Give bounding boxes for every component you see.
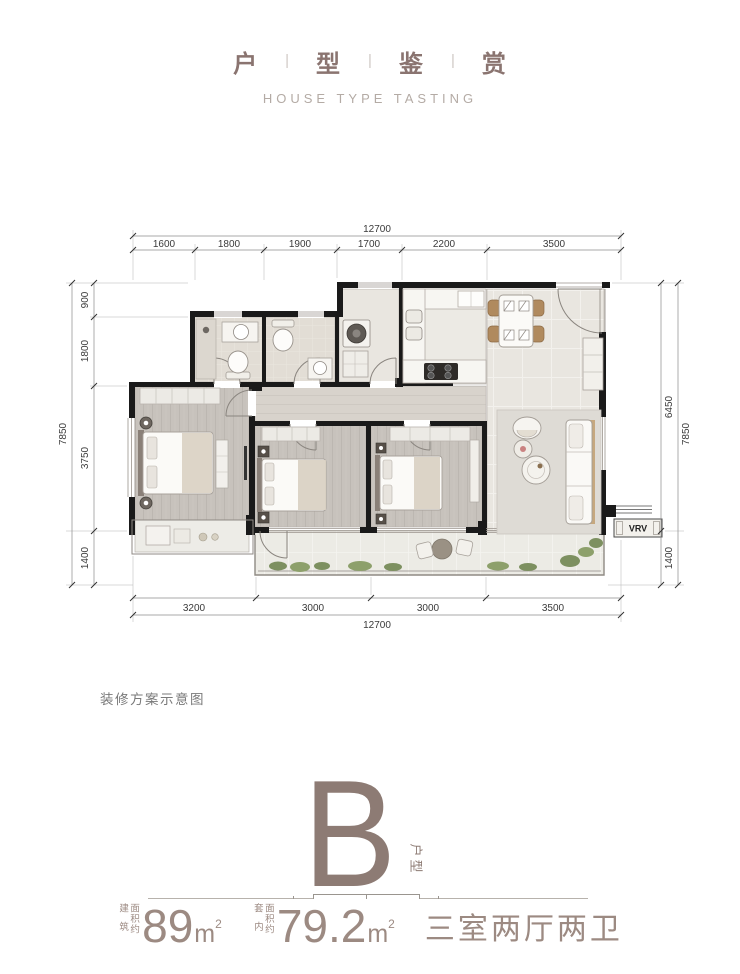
tv <box>244 446 247 480</box>
svg-text:3000: 3000 <box>417 603 440 614</box>
balcony-table <box>432 539 452 559</box>
vrv-label: VRV <box>629 524 647 534</box>
svg-text:12700: 12700 <box>363 224 391 235</box>
room-layout: 三室两厅两卫 <box>425 916 623 943</box>
build-area-value: 89 <box>142 908 193 945</box>
divider-tick <box>438 896 439 899</box>
build-area-label: 建筑 面积约 <box>117 903 138 940</box>
svg-text:6450: 6450 <box>664 395 675 418</box>
svg-text:1900: 1900 <box>289 239 312 250</box>
svg-text:1400: 1400 <box>664 546 675 569</box>
title-separator: | <box>285 52 289 69</box>
toilet <box>273 329 293 351</box>
basin <box>314 362 327 375</box>
bay-seat <box>146 526 170 545</box>
inner-area-sup: 2 <box>388 917 395 931</box>
label-col: 套内 <box>252 903 262 940</box>
inner-area-unit: m <box>367 923 388 946</box>
house-type-page: 户 | 型 | 鉴 | 赏 HOUSE TYPE TASTING <box>0 0 740 974</box>
title-char: 户 <box>233 44 258 79</box>
svg-text:3500: 3500 <box>543 239 566 250</box>
sink <box>406 327 422 340</box>
dimensions-top <box>130 230 624 280</box>
divider-tick <box>293 896 294 899</box>
svg-text:1600: 1600 <box>153 239 176 250</box>
bedroom-2 <box>257 427 326 523</box>
svg-text:1800: 1800 <box>218 239 241 250</box>
title-char: 型 <box>316 44 341 79</box>
unit-letter: B <box>303 758 396 910</box>
dresser <box>216 440 228 488</box>
unit-type-label: 户型 <box>408 843 427 875</box>
page-subtitle: HOUSE TYPE TASTING <box>0 91 740 106</box>
cabinet <box>583 338 603 390</box>
svg-text:1700: 1700 <box>358 239 381 250</box>
dim-labels-bottom: 3200 3000 3000 3500 12700 <box>183 603 565 631</box>
unit-stats: 建筑 面积约 89 m 2 套内 面积约 79.2 m 2 三室两厅两卫 <box>0 903 740 945</box>
label-col: 建筑 <box>117 903 127 940</box>
dimensions-right <box>608 280 684 588</box>
svg-text:1800: 1800 <box>80 339 91 362</box>
headboard <box>375 455 380 511</box>
svg-text:12700: 12700 <box>363 620 391 631</box>
svg-text:1400: 1400 <box>80 546 91 569</box>
build-area: 建筑 面积约 89 m 2 <box>117 903 222 945</box>
header: 户 | 型 | 鉴 | 赏 HOUSE TYPE TASTING <box>0 44 740 106</box>
inner-area: 套内 面积约 79.2 m 2 <box>252 903 395 945</box>
plan-caption: 装修方案示意图 <box>100 688 205 708</box>
unit-divider <box>148 893 588 902</box>
page-title: 户 | 型 | 鉴 | 赏 <box>0 44 740 79</box>
svg-text:900: 900 <box>80 291 91 308</box>
svg-text:3000: 3000 <box>302 603 325 614</box>
label-col: 面积约 <box>263 903 273 940</box>
divider-pedestal <box>366 894 420 899</box>
inner-area-value: 79.2 <box>277 908 367 945</box>
title-separator: | <box>451 52 455 69</box>
floor-plan-svg: VRV 12700 1600 1800 1900 1700 2200 3500 <box>55 215 715 655</box>
title-char: 鉴 <box>399 44 424 79</box>
divider-pedestal <box>313 894 368 899</box>
balcony-chair <box>416 541 434 559</box>
sink <box>406 310 422 323</box>
vrv-unit: VRV <box>606 505 662 537</box>
dim-labels-top: 12700 1600 1800 1900 1700 2200 3500 <box>153 224 566 250</box>
hallway-floor <box>255 386 486 425</box>
basin <box>234 325 249 340</box>
living-room <box>497 410 601 534</box>
svg-text:3500: 3500 <box>542 603 565 614</box>
svg-text:3200: 3200 <box>183 603 206 614</box>
tv-stand <box>470 440 479 502</box>
inner-area-label: 套内 面积约 <box>252 903 273 940</box>
headboard <box>257 458 262 512</box>
balcony-chair <box>455 539 473 557</box>
svg-text:7850: 7850 <box>58 422 69 445</box>
svg-text:2200: 2200 <box>433 239 456 250</box>
svg-text:3750: 3750 <box>80 446 91 469</box>
coffee-table <box>522 456 550 484</box>
label-col: 面积约 <box>128 903 138 940</box>
floor-plan: VRV 12700 1600 1800 1900 1700 2200 3500 <box>55 215 715 660</box>
dim-labels-left: 7850 900 1800 3750 1400 <box>58 291 91 569</box>
build-area-sup: 2 <box>215 917 222 931</box>
title-char: 赏 <box>482 44 507 79</box>
toilet <box>228 351 248 373</box>
svg-text:7850: 7850 <box>681 422 692 445</box>
title-separator: | <box>368 52 372 69</box>
build-area-unit: m <box>194 923 215 946</box>
